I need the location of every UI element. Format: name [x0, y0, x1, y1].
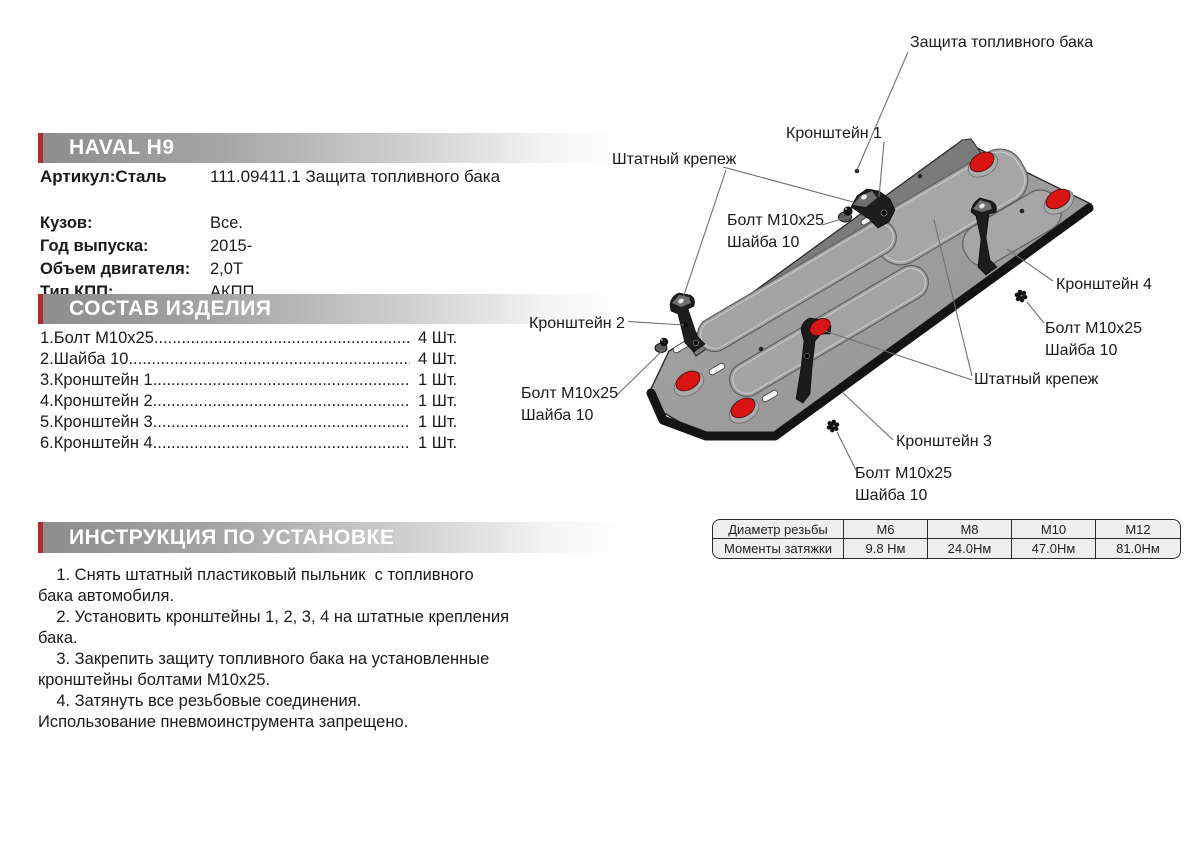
torque-header-cell: M6 [844, 520, 928, 539]
dots-leader: ........................................… [153, 370, 410, 391]
spec-row-body: Кузов:Все. [40, 212, 254, 235]
instruction-line: 3. Закрепить защиту топливного бака на у… [38, 649, 509, 670]
label-bolt-washer-bottom: Болт M10x25 Шайба 10 [855, 463, 952, 507]
part-qty: 1 Шт. [418, 433, 468, 454]
label-bolt-washer-left: Болт M10x25 Шайба 10 [521, 383, 618, 427]
spec-value: 2015- [210, 237, 252, 255]
parts-row: 6.Кронштейн 4...........................… [40, 433, 468, 454]
label-bolt-washer-right: Болт M10x25 Шайба 10 [1045, 318, 1142, 362]
instruction-line: 1. Снять штатный пластиковый пыльник с т… [38, 565, 509, 586]
brand-title: HAVAL H9 [69, 136, 175, 160]
instruction-line: 4. Затянуть все резьбовые соединения. [38, 691, 509, 712]
dots-leader: ........................................… [153, 412, 410, 433]
part-name: 3.Кронштейн 1 [40, 370, 153, 391]
article-label: Артикул:Сталь [40, 167, 167, 186]
torque-header-cell: M10 [1012, 520, 1096, 539]
label-bracket-3: Кронштейн 3 [896, 431, 992, 453]
dots-leader: ........................................… [153, 391, 410, 412]
label-stock-fastener-left: Штатный крепеж [612, 149, 736, 171]
instruction-line: бака. [38, 628, 509, 649]
parts-list: 1.Болт M10x25...........................… [40, 328, 468, 454]
instruction-line: бака автомобиля. [38, 586, 509, 607]
dots-leader: ........................................… [153, 433, 410, 454]
spec-value: Все. [210, 214, 243, 232]
parts-row: 5.Кронштейн 3...........................… [40, 412, 468, 433]
torque-header-cell: M8 [928, 520, 1012, 539]
instruction-line: 2. Установить кронштейны 1, 2, 3, 4 на ш… [38, 607, 509, 628]
torque-value-cell: 9.8 Нм [844, 539, 928, 558]
label-shield: Защита топливного бака [910, 32, 1093, 54]
torque-value-cell: Моменты затяжки [713, 539, 844, 558]
bolt-washer-icon [655, 338, 668, 353]
article-value: 111.09411.1 Защита топливного бака [210, 167, 500, 187]
instructions-title: ИНСТРУКЦИЯ ПО УСТАНОВКЕ [69, 526, 394, 550]
spec-row-engine: Объем двигателя:2,0Т [40, 258, 254, 281]
parts-title: СОСТАВ ИЗДЕЛИЯ [69, 297, 271, 321]
instructions-text: 1. Снять штатный пластиковый пыльник с т… [38, 565, 509, 733]
bolt-icon [824, 417, 842, 434]
label-stock-fastener-right: Штатный крепеж [974, 369, 1098, 391]
label-bracket-4: Кронштейн 4 [1056, 274, 1152, 296]
torque-header-cell: Диаметр резьбы [713, 520, 844, 539]
parts-row: 3.Кронштейн 1...........................… [40, 370, 468, 391]
dots-leader: ........................................… [128, 349, 410, 370]
part-name: 2.Шайба 10 [40, 349, 128, 370]
spec-value: 2,0Т [210, 260, 243, 278]
instruction-line: кронштейны болтами M10x25. [38, 670, 509, 691]
part-name: 4.Кронштейн 2 [40, 391, 153, 412]
part-name: 6.Кронштейн 4 [40, 433, 153, 454]
bolt-icon [1013, 289, 1029, 304]
spec-row-year: Год выпуска:2015- [40, 235, 254, 258]
torque-table: Диаметр резьбы M6 M8 M10 M12 Моменты зат… [712, 519, 1181, 559]
torque-header-cell: M12 [1096, 520, 1180, 539]
part-qty: 1 Шт. [418, 391, 468, 412]
spec-label: Год выпуска: [40, 235, 210, 258]
label-bolt-washer-top: Болт M10x25 Шайба 10 [727, 210, 824, 254]
label-bracket-1: Кронштейн 1 [786, 123, 882, 145]
part-qty: 4 Шт. [418, 328, 468, 349]
torque-value-cell: 24.0Нм [928, 539, 1012, 558]
spec-label: Объем двигателя: [40, 258, 210, 281]
part-qty: 1 Шт. [418, 412, 468, 433]
part-qty: 1 Шт. [418, 370, 468, 391]
label-bracket-2: Кронштейн 2 [529, 313, 625, 335]
instructions-header-bar: ИНСТРУКЦИЯ ПО УСТАНОВКЕ [38, 522, 628, 553]
part-qty: 4 Шт. [418, 349, 468, 370]
spec-list: Кузов:Все. Год выпуска:2015- Объем двига… [40, 212, 254, 304]
dots-leader: ........................................… [154, 328, 410, 349]
spec-label: Кузов: [40, 212, 210, 235]
bracket-2-part [670, 293, 705, 352]
torque-value-cell: 81.0Нм [1096, 539, 1180, 558]
shield-plate [650, 139, 1091, 438]
parts-row: 2.Шайба 10..............................… [40, 349, 468, 370]
article-row: Артикул:Сталь 111.09411.1 Защита топливн… [40, 167, 167, 189]
torque-value-cell: 47.0Нм [1012, 539, 1096, 558]
part-name: 1.Болт M10x25 [40, 328, 154, 349]
brand-header-bar: HAVAL H9 [38, 133, 628, 163]
parts-row: 4.Кронштейн 2...........................… [40, 391, 468, 412]
instruction-line: Использование пневмоинструмента запрещен… [38, 712, 509, 733]
parts-row: 1.Болт M10x25...........................… [40, 328, 468, 349]
part-name: 5.Кронштейн 3 [40, 412, 153, 433]
